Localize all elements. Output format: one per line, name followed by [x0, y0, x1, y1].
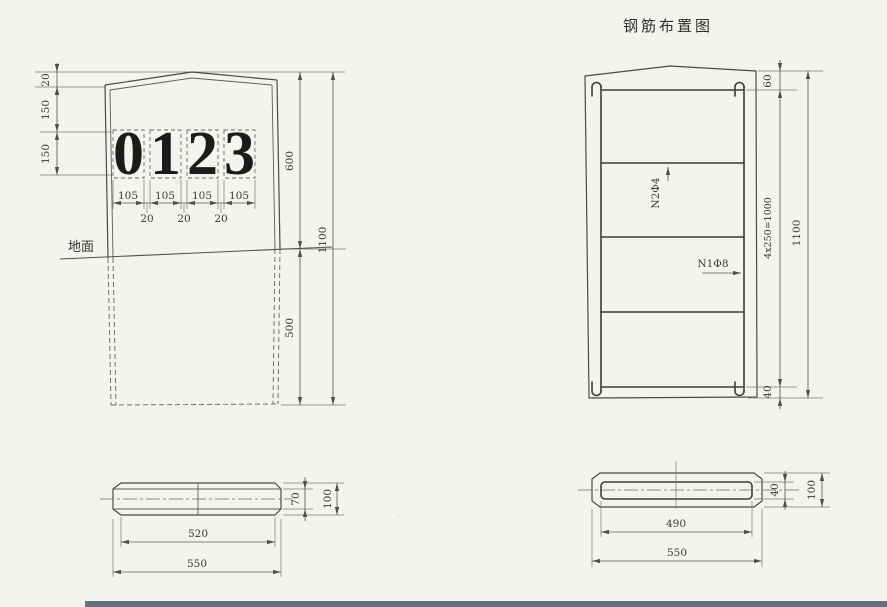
rebar-cage-section: [601, 482, 752, 499]
ground-line: [60, 247, 332, 259]
scan-edge-artifact: [85, 601, 887, 607]
front-section-extension-lines: [113, 483, 344, 577]
dim-label-4x250: 4x250=1000: [763, 197, 774, 259]
dim-label-500: 500: [284, 318, 296, 338]
front-right-dims: 600 500 1100: [284, 72, 333, 405]
rebar-label-N1: N1Φ8: [697, 258, 728, 270]
dim-label-150-upper: 150: [40, 100, 52, 120]
dim-label-600: 600: [284, 151, 296, 171]
marker-digit-2: 2: [187, 120, 218, 188]
rebar-label-N2: N2Φ4: [650, 177, 662, 208]
dim-label-gap-3: 20: [214, 213, 227, 225]
front-section-view: 70 100 520 550: [100, 477, 344, 577]
drawing-title: 钢筋布置图: [623, 17, 713, 35]
dim-label-105-4: 105: [229, 190, 249, 202]
rebar-callouts: N2Φ4 N1Φ8: [650, 167, 741, 273]
technical-drawing: 钢筋布置图: [0, 0, 887, 607]
dim-label-gap-2: 20: [177, 213, 190, 225]
front-left-dims: 20 150 150: [40, 63, 57, 175]
dim-label-150-lower: 150: [40, 144, 52, 164]
marker-digit-1: 1: [150, 120, 181, 188]
marker-digit-0: 0: [113, 120, 144, 188]
ground-label: 地面: [68, 240, 94, 255]
main-bars-N1: [592, 83, 744, 396]
dim-label-60: 60: [762, 74, 774, 87]
dim-label-550-front: 550: [187, 558, 207, 570]
dim-label-105-2: 105: [155, 190, 175, 202]
rebar-view: N2Φ4 N1Φ8 60 4x250=1000 40 1100: [585, 60, 823, 409]
dim-label-105-1: 105: [118, 190, 138, 202]
dim-label-70: 70: [290, 492, 302, 505]
rebar-section-view: 40 100 490 550: [578, 461, 830, 567]
rebar-section-dims: 40 100 490 550: [592, 471, 822, 561]
dim-label-105-3: 105: [192, 190, 212, 202]
rebar-post-outline: [585, 66, 757, 398]
scanned-drawing-page: 钢筋布置图: [0, 0, 887, 607]
rebar-section-extension-lines: [592, 473, 830, 567]
dim-label-40-section: 40: [769, 483, 781, 496]
dim-label-1100-front: 1100: [317, 227, 329, 254]
tie-bars-N2: [601, 90, 744, 387]
marker-digits: 0 1 2 3: [113, 120, 255, 188]
front-section-dims: 70 100 520 550: [113, 477, 337, 572]
dim-label-490: 490: [666, 518, 686, 530]
post-buried-outline: [108, 249, 280, 405]
dim-label-100-rebar: 100: [806, 480, 818, 500]
marker-digit-3: 3: [224, 120, 255, 188]
dim-label-1100-rebar: 1100: [791, 220, 803, 247]
dim-label-100-front: 100: [322, 489, 334, 509]
dim-label-40-rebar: 40: [762, 385, 774, 398]
dim-label-520: 520: [188, 528, 208, 540]
rebar-extension-lines: [746, 71, 823, 398]
dim-label-20-top: 20: [40, 73, 52, 86]
dim-label-gap-1: 20: [140, 213, 153, 225]
front-view: 地面 0 1 2 3 20 150 150: [35, 63, 346, 405]
rebar-right-dims: 60 4x250=1000 40 1100: [762, 60, 808, 409]
dim-label-550-rebar: 550: [667, 547, 687, 559]
